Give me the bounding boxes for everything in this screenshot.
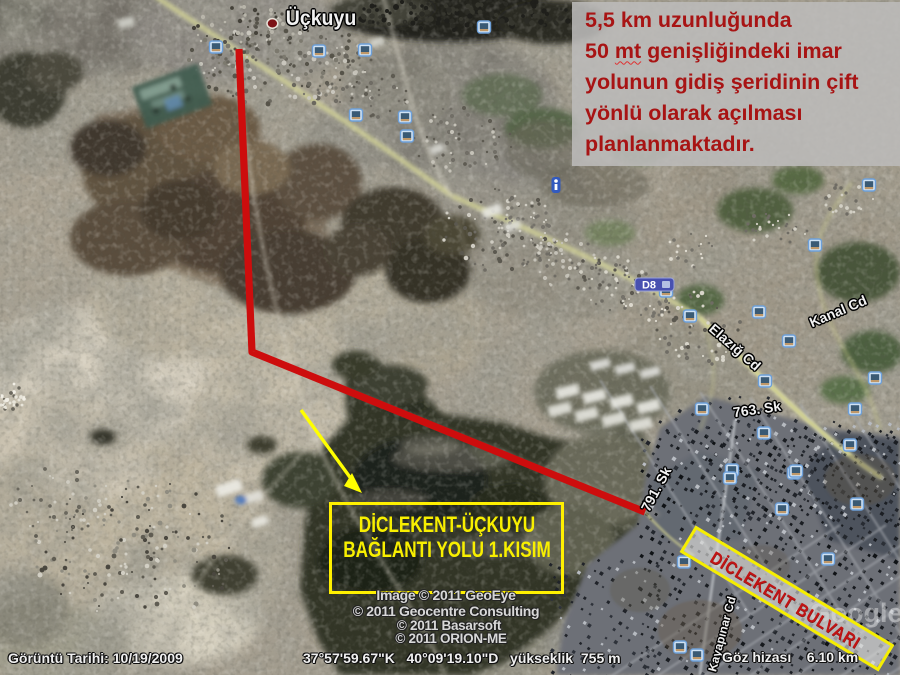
svg-text:D8: D8 xyxy=(642,280,656,292)
